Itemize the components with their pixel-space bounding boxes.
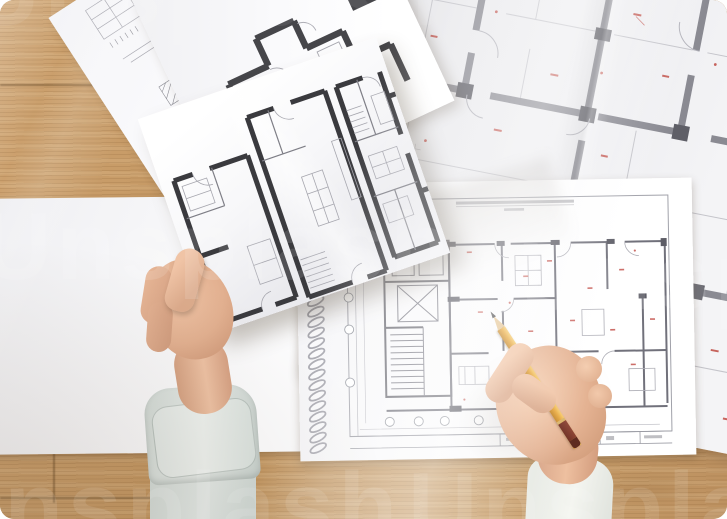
right-hand-knuckle <box>588 384 612 408</box>
photo-architect-blueprints: Unsplash Unsplash Unsplash Unsplash Unsp… <box>0 0 727 519</box>
plank-seam <box>0 497 170 499</box>
left-hand-finger <box>145 301 173 353</box>
right-hand-knuckle <box>576 356 602 382</box>
